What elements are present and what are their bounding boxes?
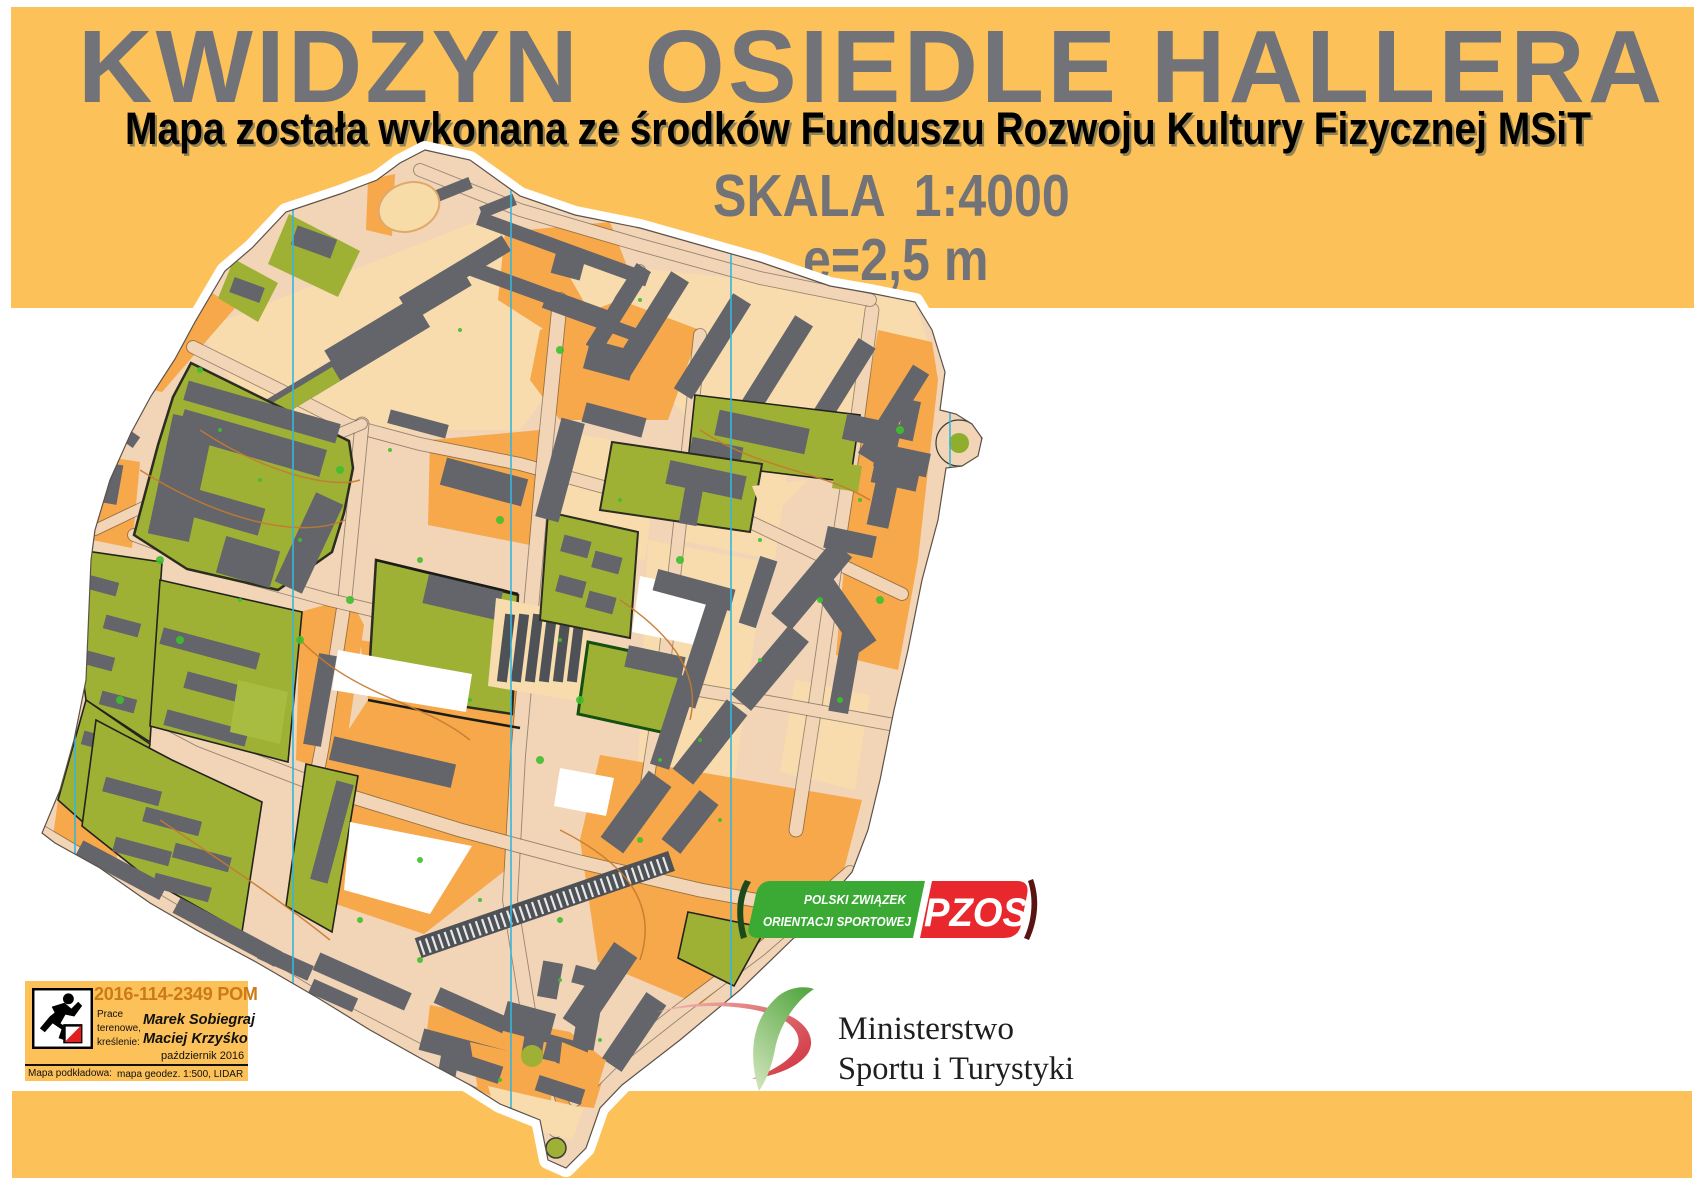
svg-text:POLSKI ZWIĄZEK: POLSKI ZWIĄZEK (804, 892, 907, 907)
svg-text:ORIENTACJI SPORTOWEJ: ORIENTACJI SPORTOWEJ (763, 914, 912, 929)
svg-text:Sportu i Turystyki: Sportu i Turystyki (838, 1051, 1074, 1087)
svg-text:Ministerstwo: Ministerstwo (838, 1011, 1014, 1047)
svg-text:PZOS: PZOS (924, 891, 1028, 935)
